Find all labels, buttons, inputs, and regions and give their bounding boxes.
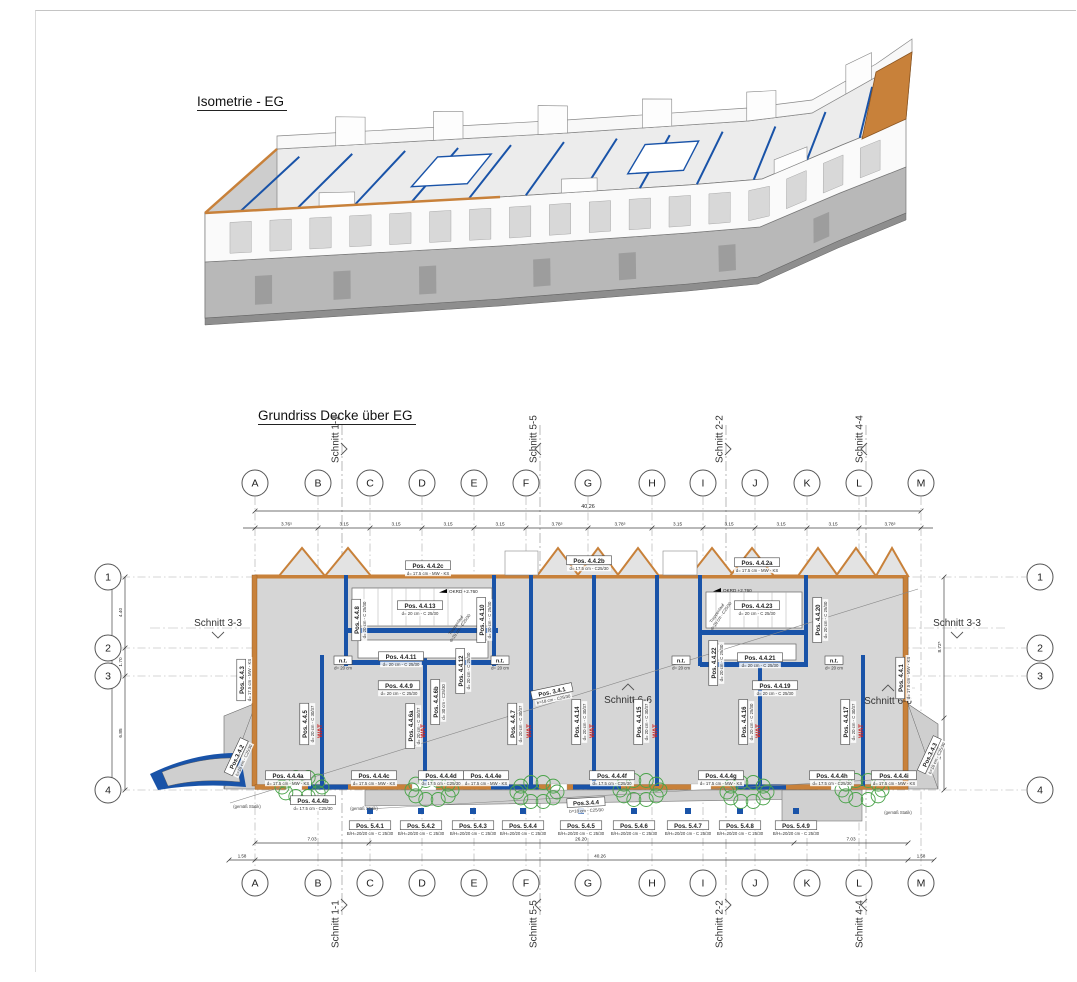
grid-bubble-label: L [856, 878, 862, 890]
grid-bubble-label: H [648, 878, 656, 890]
balcony-zigzag [876, 548, 908, 576]
wat-label: WAT [420, 724, 427, 738]
pos-label: Pos. 4.4.23d= 20 cm - C 25/30 [734, 601, 779, 616]
pos-label-sub: d= 20 cm - C 25/30 [739, 611, 776, 616]
pos-label-text: Pos. 4.4.22 [712, 647, 718, 679]
pos-label: Pos. 4.4.16d= 20 cm - C 25/30 [739, 699, 754, 744]
cad-canvas: 40.263.76⁵3.153.153.153.153.78⁵3.78⁵3.15… [0, 0, 1077, 982]
iso-gable-wall [434, 111, 463, 140]
pos-label-text: Pos. 4.4.3 [240, 665, 246, 693]
pos-label: Pos. 4.4.13d= 20 cm - C 25/30 [397, 601, 442, 616]
iso-gable-wall [336, 117, 365, 146]
grid-bubble: G [575, 470, 601, 496]
pos-label-text: Pos. 4.4.21 [744, 656, 776, 662]
nt-label-sub: d= 20 cm [672, 666, 690, 671]
pos-label-sub: d= 17.5 cm - MW - KS [465, 781, 508, 786]
pos-label-text: Pos. 4.4.16 [742, 706, 748, 738]
pos-label-text: Pos. 5.4.2 [407, 824, 435, 830]
grid-bubble: J [742, 870, 768, 896]
wat-label: WAT [858, 724, 865, 738]
iso-window-opening [709, 192, 730, 224]
grid-bubble: C [357, 870, 383, 896]
iso-view [205, 39, 912, 325]
pos-label: Pos. 4.4.4gd= 17.5 cm - MW - KS [698, 771, 744, 786]
pos-label-text: Pos. 4.4.4e [470, 774, 502, 780]
grid-bubble-label: C [366, 478, 374, 490]
grid-bubble: B [305, 470, 331, 496]
pos-label-text: Pos. 5.4.8 [726, 824, 754, 830]
grid-bubble-label: 2 [105, 643, 111, 655]
iso-basement-window [419, 266, 436, 295]
iso-window-opening [230, 221, 251, 253]
grid-bubble-label: B [314, 878, 321, 890]
grid-bubble-label: 4 [105, 785, 111, 797]
grid-bubble: 2 [1027, 635, 1053, 661]
pos-label: Pos. 5.4.7B/H=20/20 cm - C 25/30 [663, 821, 713, 836]
grid-bubble: G [575, 870, 601, 896]
pos-label: Pos. 4.4.9d= 20 cm - C 25/30 [378, 681, 420, 696]
grid-bubble-label: 4 [1037, 785, 1043, 797]
grid-bubble-label: A [251, 878, 258, 890]
balcony-zigzag [836, 548, 876, 576]
grid-bubble-label: L [856, 478, 862, 490]
pos-label-text: Pos. 5.4.7 [674, 824, 702, 830]
pos-label-sub: d= 30 cm - C25/30 [441, 684, 446, 720]
nt-label-sub: d= 20 cm [491, 666, 509, 671]
iso-basement-window [619, 252, 637, 280]
pos-label: Pos. 4.4.8d= 20 cm - C 25/30 [352, 599, 367, 641]
grid-bubble: 2 [95, 635, 121, 661]
pos-label: Pos. 4.4.11d= 20 cm - C 25/30 [378, 652, 423, 667]
dim-left-segment: 6.85 [118, 728, 123, 738]
pos-label-text: Pos. 5.4.9 [782, 824, 810, 830]
iso-gable-wall [747, 91, 776, 122]
pos-label: Pos. 4.4.4id= 17.5 cm - MW - KS [871, 771, 917, 786]
core-cross-wall [346, 628, 498, 633]
pos-label-sub: d= 17.5 cm - MW - KS [267, 781, 310, 786]
grid-bubble-label: M [917, 478, 926, 490]
pos-label-text: Pos. 4.4.14 [575, 706, 581, 738]
grid-bubble-label: I [702, 878, 705, 890]
pos-label-text: Pos. 4.4.4d [425, 774, 457, 780]
pos-label-sub: d= 20 cm - C 25/30 [823, 601, 828, 638]
grid-bubble-label: K [803, 878, 810, 890]
core-wall [492, 575, 496, 666]
pos-label-text: Pos. 4.4.6a [409, 710, 415, 742]
pos-label-text: Pos. 4.4.9 [385, 684, 413, 690]
pos-label-sub: d= 17.5 cm - MW - KS [873, 781, 916, 786]
okrd-text: OKRD +2.760 [723, 588, 752, 593]
pos-label-text: Pos. 4.4.2c [412, 564, 444, 570]
pos-label-sub: d= 17.5 cm - MW - KS [700, 781, 743, 786]
iso-parapet-wall [561, 178, 597, 193]
grid-bubble: 3 [1027, 663, 1053, 689]
pos-label: Pos. 4.4.4bd= 17.5 cm - C25/30 [290, 796, 335, 811]
pos-label: Pos. 4.4.2bd= 17.5 cm - C25/30 [566, 556, 611, 571]
pos-label-text: Pos. 4.4.4b [297, 799, 329, 805]
grid-bubble-label: J [752, 478, 757, 490]
entry-recess [663, 551, 697, 575]
dim-top-segment: 3.15 [673, 522, 683, 527]
pos-label-text: Pos. 4.4.4i [879, 774, 909, 780]
grid-bubble-label: G [584, 878, 592, 890]
section-label-bottom: Schnitt 1-1 [331, 900, 342, 948]
iso-basement-window [255, 275, 272, 305]
pos-label: Pos. 5.4.1B/H=20/20 cm - C 25/30 [345, 821, 395, 836]
pos-label-sub: d= 20 cm - C 25/30 [487, 601, 492, 638]
pos-label-sub: d= 17.5 cm - C25/30 [812, 781, 852, 786]
grid-bubble: K [794, 870, 820, 896]
pos-label: Pos. 4.4.22d= 20 cm - C 25/30 [709, 640, 724, 685]
grid-bubble: B [305, 870, 331, 896]
pos-label-text: Pos. 4.4.19 [759, 684, 791, 690]
nt-label-text: n.t. [677, 659, 686, 665]
okrd-text: OKRD +2.760 [449, 589, 478, 594]
grid-bubble: F [513, 470, 539, 496]
dim-bottom-total: 40.26 [594, 854, 606, 859]
pos-label-sub: d= 20 cm - C 30/37 [644, 703, 649, 740]
pos-label-text: Pos. 4.4.15 [637, 706, 643, 738]
pos-label: Pos. 5.4.4B/H=20/20 cm - C 25/30 [498, 821, 548, 836]
pos-label-text: Pos. 5.4.6 [620, 824, 648, 830]
dim-top-segment: 3.78⁵ [614, 522, 625, 527]
dim-top-total: 40.26 [581, 504, 595, 510]
grid-bubble: E [461, 470, 487, 496]
grid-bubble: 1 [95, 564, 121, 590]
pos-label-sub: d= 20 cm - C 30/37 [582, 703, 587, 740]
iso-window-opening [669, 195, 690, 227]
balcony-zigzag [798, 548, 838, 576]
apartment-separation-wall [655, 575, 659, 786]
column-20-20 [631, 808, 637, 814]
grid-bubble: 3 [95, 663, 121, 689]
grid-bubble: K [794, 470, 820, 496]
iso-window-opening [430, 210, 451, 242]
dim-top-segment: 3.15 [443, 522, 453, 527]
pos-label-sub: B/H=20/20 cm - C 25/30 [558, 831, 605, 836]
grid-bubble-label: D [418, 878, 426, 890]
wat-label: WAT [317, 724, 324, 738]
pos-label: Pos. 4.4.2cd= 17.5 cm - MW - KS [405, 561, 451, 576]
grid-bubble-label: J [752, 878, 757, 890]
pos-label: Pos. 4.4.7d= 20 cm - C 30/37 [508, 703, 523, 745]
section-label-top: Schnitt 5-5 [529, 415, 540, 463]
nt-label-text: n.t. [339, 659, 348, 665]
statik-note: (gemäß Statik) [350, 806, 378, 811]
pos-label-sub: d= 20 cm - C 30/37 [518, 705, 523, 742]
pos-label-sub: d= 17.5 cm - MW - KS [353, 781, 396, 786]
pos-label-sub: d= 17.5 cm - MW - KS [407, 571, 450, 576]
iso-gable-wall [538, 106, 567, 135]
iso-window-opening [350, 215, 371, 247]
iso-window-opening [310, 217, 331, 249]
grid-bubble-label: F [523, 878, 529, 890]
entry-recess [505, 551, 538, 575]
balcony-zigzag [617, 548, 659, 576]
pos-label-text: Pos. 4.4.4f [597, 774, 628, 780]
pos-label-sub: d= 17.5 cm - MW - KS [906, 657, 911, 700]
grid-bubble: H [639, 870, 665, 896]
pos-label: Pos. 4.4.15d= 20 cm - C 30/37 [634, 699, 649, 744]
dim-bottom-segment: 7.03 [307, 837, 317, 842]
apartment-separation-wall [320, 655, 324, 786]
core-wall [698, 575, 702, 666]
pos-label: Pos. 4.4.20d= 20 cm - C 25/30 [813, 597, 828, 642]
pos-label-text: Pos. 4.4.7 [511, 709, 517, 737]
pos-label-sub: d= 17.5 cm - MW - KS [247, 659, 252, 702]
pos-label-sub: d= 20 cm - C 25/30 [757, 691, 794, 696]
nt-label-text: n.t. [830, 659, 839, 665]
grid-bubble: C [357, 470, 383, 496]
pos-label-text: Pos. 4.4.1 [899, 663, 905, 691]
pos-label-text: Pos. 5.4.5 [567, 824, 595, 830]
core-cross-wall [700, 630, 808, 635]
pos-label-sub: d= 17.5 cm - C25/30 [293, 806, 333, 811]
pos-label-sub: d= 20 cm - C 25/30 [362, 601, 367, 638]
iso-window-opening [470, 208, 491, 240]
grid-bubble-label: E [470, 878, 477, 890]
pos-label-sub: d= 20 cm - C 30/37 [310, 705, 315, 742]
pos-label: Pos. 4.4.2ad= 17.5 cm - MW - KS [734, 558, 780, 573]
section-label-side: Schnitt 3-3 [194, 618, 242, 629]
pos-label: Pos. 4.4.12d= 20 cm - C 25/30 [456, 648, 471, 693]
grid-bubble: D [409, 470, 435, 496]
grid-bubble: A [242, 870, 268, 896]
section-label-top: Schnitt 2-2 [715, 415, 726, 463]
grid-bubble-label: 3 [105, 671, 111, 683]
pos-label-sub: B/H=20/20 cm - C 25/30 [665, 831, 712, 836]
pos-label-sub: B/H=20/20 cm - C 25/30 [347, 831, 394, 836]
dim-bottom-offset: 1.58 [238, 854, 247, 859]
pos-label: Pos. 4.4.21d= 20 cm - C 25/30 [737, 653, 782, 668]
grid-bubble: 4 [95, 777, 121, 803]
grid-bubble-label: G [584, 478, 592, 490]
pos-label-sub: B/H=20/20 cm - C 25/30 [450, 831, 497, 836]
iso-basement-window [718, 244, 736, 272]
dim-bottom-segment: 26.20 [575, 837, 587, 842]
pos-label: Pos. 5.4.3B/H=20/20 cm - C 25/30 [448, 821, 498, 836]
grid-bubble-label: M [917, 878, 926, 890]
cloud-arc [861, 793, 875, 807]
nt-label: n.t.d= 20 cm [334, 656, 352, 671]
apartment-separation-wall [529, 575, 533, 786]
statik-note: (gemäß Statik) [233, 804, 261, 809]
dim-top-segment: 3.15 [776, 522, 786, 527]
dim-top-segment: 3.15 [391, 522, 401, 527]
pos-label-sub: d= 20 cm - C 25/30 [719, 644, 724, 681]
grid-bubble-label: 1 [1037, 572, 1043, 584]
apartment-separation-wall [423, 655, 427, 786]
pos-label-text: Pos. 4.4.13 [404, 604, 436, 610]
grid-bubble-label: F [523, 478, 529, 490]
column-20-20 [685, 808, 691, 814]
dim-top-segment: 3.78⁵ [884, 522, 895, 527]
pos-label-text: Pos. 4.4.4a [272, 774, 304, 780]
pos-label: Pos. 5.4.9B/H=20/20 cm - C 25/30 [771, 821, 821, 836]
nt-label: n.t.d= 20 cm [825, 656, 843, 671]
apartment-separation-wall [861, 655, 865, 786]
grid-bubble-label: I [702, 478, 705, 490]
nt-label: n.t.d= 20 cm [672, 656, 690, 671]
grid-bubble-label: 3 [1037, 671, 1043, 683]
dim-top-segment: 3.15 [495, 522, 505, 527]
dim-right-segment: 8.72⁵ [937, 641, 942, 652]
grid-bubble-label: H [648, 478, 656, 490]
pos-label-sub: d= 20 cm - C 25/30 [742, 663, 779, 668]
pos-label-text: Pos. 5.4.3 [459, 824, 487, 830]
pos-label-text: Pos. 4.4.2a [741, 561, 773, 567]
section-label-side: Schnitt 3-3 [933, 618, 981, 629]
pos-label-sub: B/H=20/20 cm - C 25/30 [398, 831, 445, 836]
pos-label-sub: d= 20 cm - C 25/30 [466, 652, 471, 689]
pos-label: Pos. 4.4.1d= 17.5 cm - MW - KS [896, 655, 911, 701]
terrace-slab-right [782, 790, 862, 821]
pos-label-sub: d= 20 cm - C 25/30 [383, 662, 420, 667]
nt-label-text: n.t. [496, 659, 505, 665]
grid-bubble-label: B [314, 478, 321, 490]
section-arrow [212, 632, 224, 638]
pos-label-text: Pos. 4.4.4h [816, 774, 848, 780]
section-label-bottom: Schnitt 2-2 [715, 900, 726, 948]
grid-bubble: A [242, 470, 268, 496]
grid-bubble: L [846, 470, 872, 496]
statik-note: (gemäß Statik) [884, 810, 912, 815]
pos-label-text: Pos. 5.4.1 [356, 824, 384, 830]
grid-bubble-label: A [251, 478, 258, 490]
grid-bubble-label: 2 [1037, 643, 1043, 655]
pos-label-text: Pos. 4.4.17 [844, 706, 850, 738]
grid-bubble: F [513, 870, 539, 896]
pos-label-sub: B/H=20/20 cm - C 25/30 [500, 831, 547, 836]
section-label-top: Schnitt 4-4 [855, 415, 866, 463]
dim-left-segment: 1.70 [118, 657, 123, 667]
grid-bubble: I [690, 470, 716, 496]
grid-bubble-label: E [470, 478, 477, 490]
balcony-zigzag [325, 548, 371, 576]
iso-window-opening [270, 219, 291, 251]
pos-label-sub: d= 20 cm - C 30/37 [851, 703, 856, 740]
iso-basement-window [333, 270, 350, 299]
pos-label: Pos. 5.4.5B/H=20/20 cm - C 25/30 [556, 821, 606, 836]
iso-window-opening [390, 213, 411, 245]
pos-label-text: Pos. 4.4.12 [459, 655, 465, 687]
pos-label: Pos. 4.4.17d= 20 cm - C 30/37 [841, 699, 856, 744]
pos-label: Pos. 4.4.4hd= 17.5 cm - C25/30 [809, 771, 854, 786]
column-20-20 [520, 808, 526, 814]
pos-label-text: Pos. 4.4.2b [573, 559, 605, 565]
iso-gable-wall [642, 99, 671, 128]
pos-label: Pos. 4.4.5d= 20 cm - C 30/37 [300, 703, 315, 745]
pos-label-sub: B/H=20/20 cm - C 25/30 [717, 831, 764, 836]
section-label-bottom: Schnitt 5-5 [529, 900, 540, 948]
wat-label: WAT [652, 724, 659, 738]
pos-label: Pos. 4.4.4ad= 17.5 cm - MW - KS [265, 771, 311, 786]
apartment-separation-wall [592, 575, 596, 786]
dim-left-segment: 4.40 [118, 608, 123, 618]
grid-bubble: M [908, 470, 934, 496]
dim-bottom-offset: 1.58 [917, 854, 926, 859]
column-20-20 [418, 808, 424, 814]
pos-label: Pos. 4.4.4dd= 17.5 cm - C25/30 [418, 771, 463, 786]
pos-label: Pos. 4.4.3d= 17.5 cm - MW - KS [237, 657, 252, 703]
pos-label: Pos. 4.4.6ad= 20 cm - C 30/37 [406, 703, 421, 748]
pos-label: Pos. 5.4.8B/H=20/20 cm - C 25/30 [715, 821, 765, 836]
dim-top-segment: 3.76⁵ [281, 522, 292, 527]
plan-view [122, 425, 1026, 915]
pos-label: Pos. 4.4.19d= 20 cm - C 25/30 [752, 681, 797, 696]
left-perimeter-wall [252, 575, 257, 786]
nt-label-sub: d= 20 cm [334, 666, 352, 671]
pos-label-sub: B/H=20/20 cm - C 25/30 [773, 831, 820, 836]
pos-label-sub: B/H=20/20 cm - C 25/30 [611, 831, 658, 836]
section-arrow [951, 632, 963, 638]
grid-bubble: H [639, 470, 665, 496]
pos-label-text: Pos. 4.4.23 [741, 604, 773, 610]
wat-label: WAT [755, 724, 762, 738]
pos-label-sub: d= 17.5 cm - C25/30 [421, 781, 461, 786]
pos-label: Pos. 5.4.6B/H=20/20 cm - C 25/30 [609, 821, 659, 836]
pos-label-text: Pos. 4.4.8 [355, 605, 361, 633]
iso-window-opening [629, 198, 650, 230]
iso-basement-window [533, 258, 550, 287]
grid-bubble: D [409, 870, 435, 896]
dim-top-segment: 3.78⁵ [551, 522, 562, 527]
pos-label: Pos.3.4.4b=18 cm - C25/30 [567, 797, 606, 814]
core-wall [804, 575, 808, 666]
pos-label-sub: d= 17.5 cm - C25/30 [592, 781, 632, 786]
pos-label-sub: d= 20 cm - C 25/30 [749, 703, 754, 740]
pos-label-sub: d= 20 cm - C 25/30 [381, 691, 418, 696]
grid-bubble: J [742, 470, 768, 496]
grid-bubble: L [846, 870, 872, 896]
nt-label-sub: d= 20 cm [825, 666, 843, 671]
grid-bubble-label: 1 [105, 572, 111, 584]
pos-label-sub: d= 17.5 cm - MW - KS [736, 568, 779, 573]
grid-bubble: 4 [1027, 777, 1053, 803]
pos-label-text: Pos. 4.4.20 [816, 604, 822, 636]
dim-top-segment: 3.15 [828, 522, 838, 527]
column-20-20 [793, 808, 799, 814]
pos-label: Pos. 4.4.4ed= 17.5 cm - MW - KS [463, 771, 509, 786]
grid-bubble-label: K [803, 478, 810, 490]
pos-label: Pos. 5.4.2B/H=20/20 cm - C 25/30 [396, 821, 446, 836]
column-20-20 [470, 808, 476, 814]
section-label-bottom: Schnitt 4-4 [855, 900, 866, 948]
iso-window-opening [509, 206, 530, 238]
iso-window-opening [549, 203, 570, 235]
iso-window-opening [749, 186, 770, 221]
grid-bubble: I [690, 870, 716, 896]
pos-label-sub: d= 17.5 cm - C25/30 [569, 566, 609, 571]
wat-label: WAT [526, 724, 533, 738]
grid-bubble-label: C [366, 878, 374, 890]
pos-label: Pos. 4.4.4fd= 17.5 cm - C25/30 [589, 771, 634, 786]
core-wall [344, 575, 348, 666]
nt-label: n.t.d= 20 cm [491, 656, 509, 671]
pos-label: Pos. 4.4.14d= 20 cm - C 30/37 [572, 699, 587, 744]
pos-label-text: Pos. 4.4.4g [705, 774, 737, 780]
pos-label-text: Pos. 4.4.11 [386, 655, 417, 661]
pos-label-text: Pos. 4.4.10 [480, 604, 486, 636]
grid-bubble: 1 [1027, 564, 1053, 590]
pos-label: Pos. 4.4.6bd= 30 cm - C25/30 [431, 679, 446, 724]
pos-label-sub: d= 20 cm - C 25/30 [402, 611, 439, 616]
pos-label: Pos. 4.4.4cd= 17.5 cm - MW - KS [351, 771, 397, 786]
dim-top-segment: 3.15 [724, 522, 734, 527]
drawing-sheet: Isometrie - EG Grundriss Decke über EG 4… [0, 0, 1077, 982]
grid-bubble: E [461, 870, 487, 896]
pos-label-text: Pos. 4.4.6b [434, 686, 440, 718]
